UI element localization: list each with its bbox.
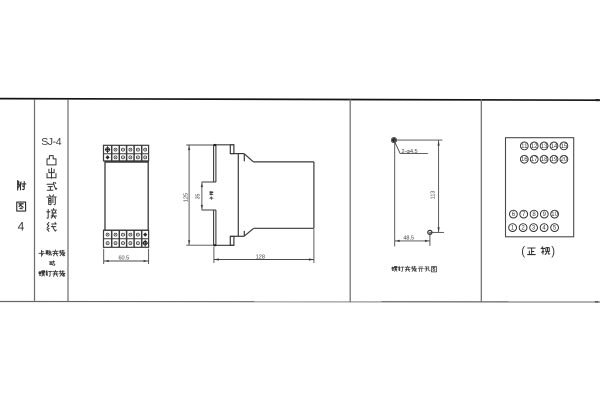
svg-text:10: 10 [551, 212, 558, 218]
svg-text:60.5: 60.5 [118, 255, 129, 261]
svg-text:15: 15 [561, 144, 568, 150]
svg-text:18: 18 [541, 157, 548, 163]
svg-text:SJ-4: SJ-4 [41, 136, 62, 148]
svg-text:48.5: 48.5 [403, 236, 414, 242]
svg-text:): ) [551, 246, 555, 258]
svg-text:113: 113 [431, 191, 437, 199]
svg-text:16: 16 [521, 157, 528, 163]
svg-text:12: 12 [531, 144, 538, 150]
svg-text:125: 125 [183, 193, 189, 202]
svg-text:4: 4 [18, 220, 25, 234]
svg-text:17: 17 [531, 157, 538, 163]
svg-text:128: 128 [256, 255, 265, 261]
svg-text:2-φ4.5: 2-φ4.5 [402, 149, 418, 155]
svg-text:(: ( [521, 246, 525, 258]
svg-text:14: 14 [551, 144, 558, 150]
svg-text:20: 20 [561, 157, 568, 163]
svg-text:13: 13 [541, 144, 548, 150]
svg-text:35: 35 [196, 194, 202, 200]
svg-text:11: 11 [521, 144, 528, 150]
svg-text:19: 19 [551, 157, 558, 163]
